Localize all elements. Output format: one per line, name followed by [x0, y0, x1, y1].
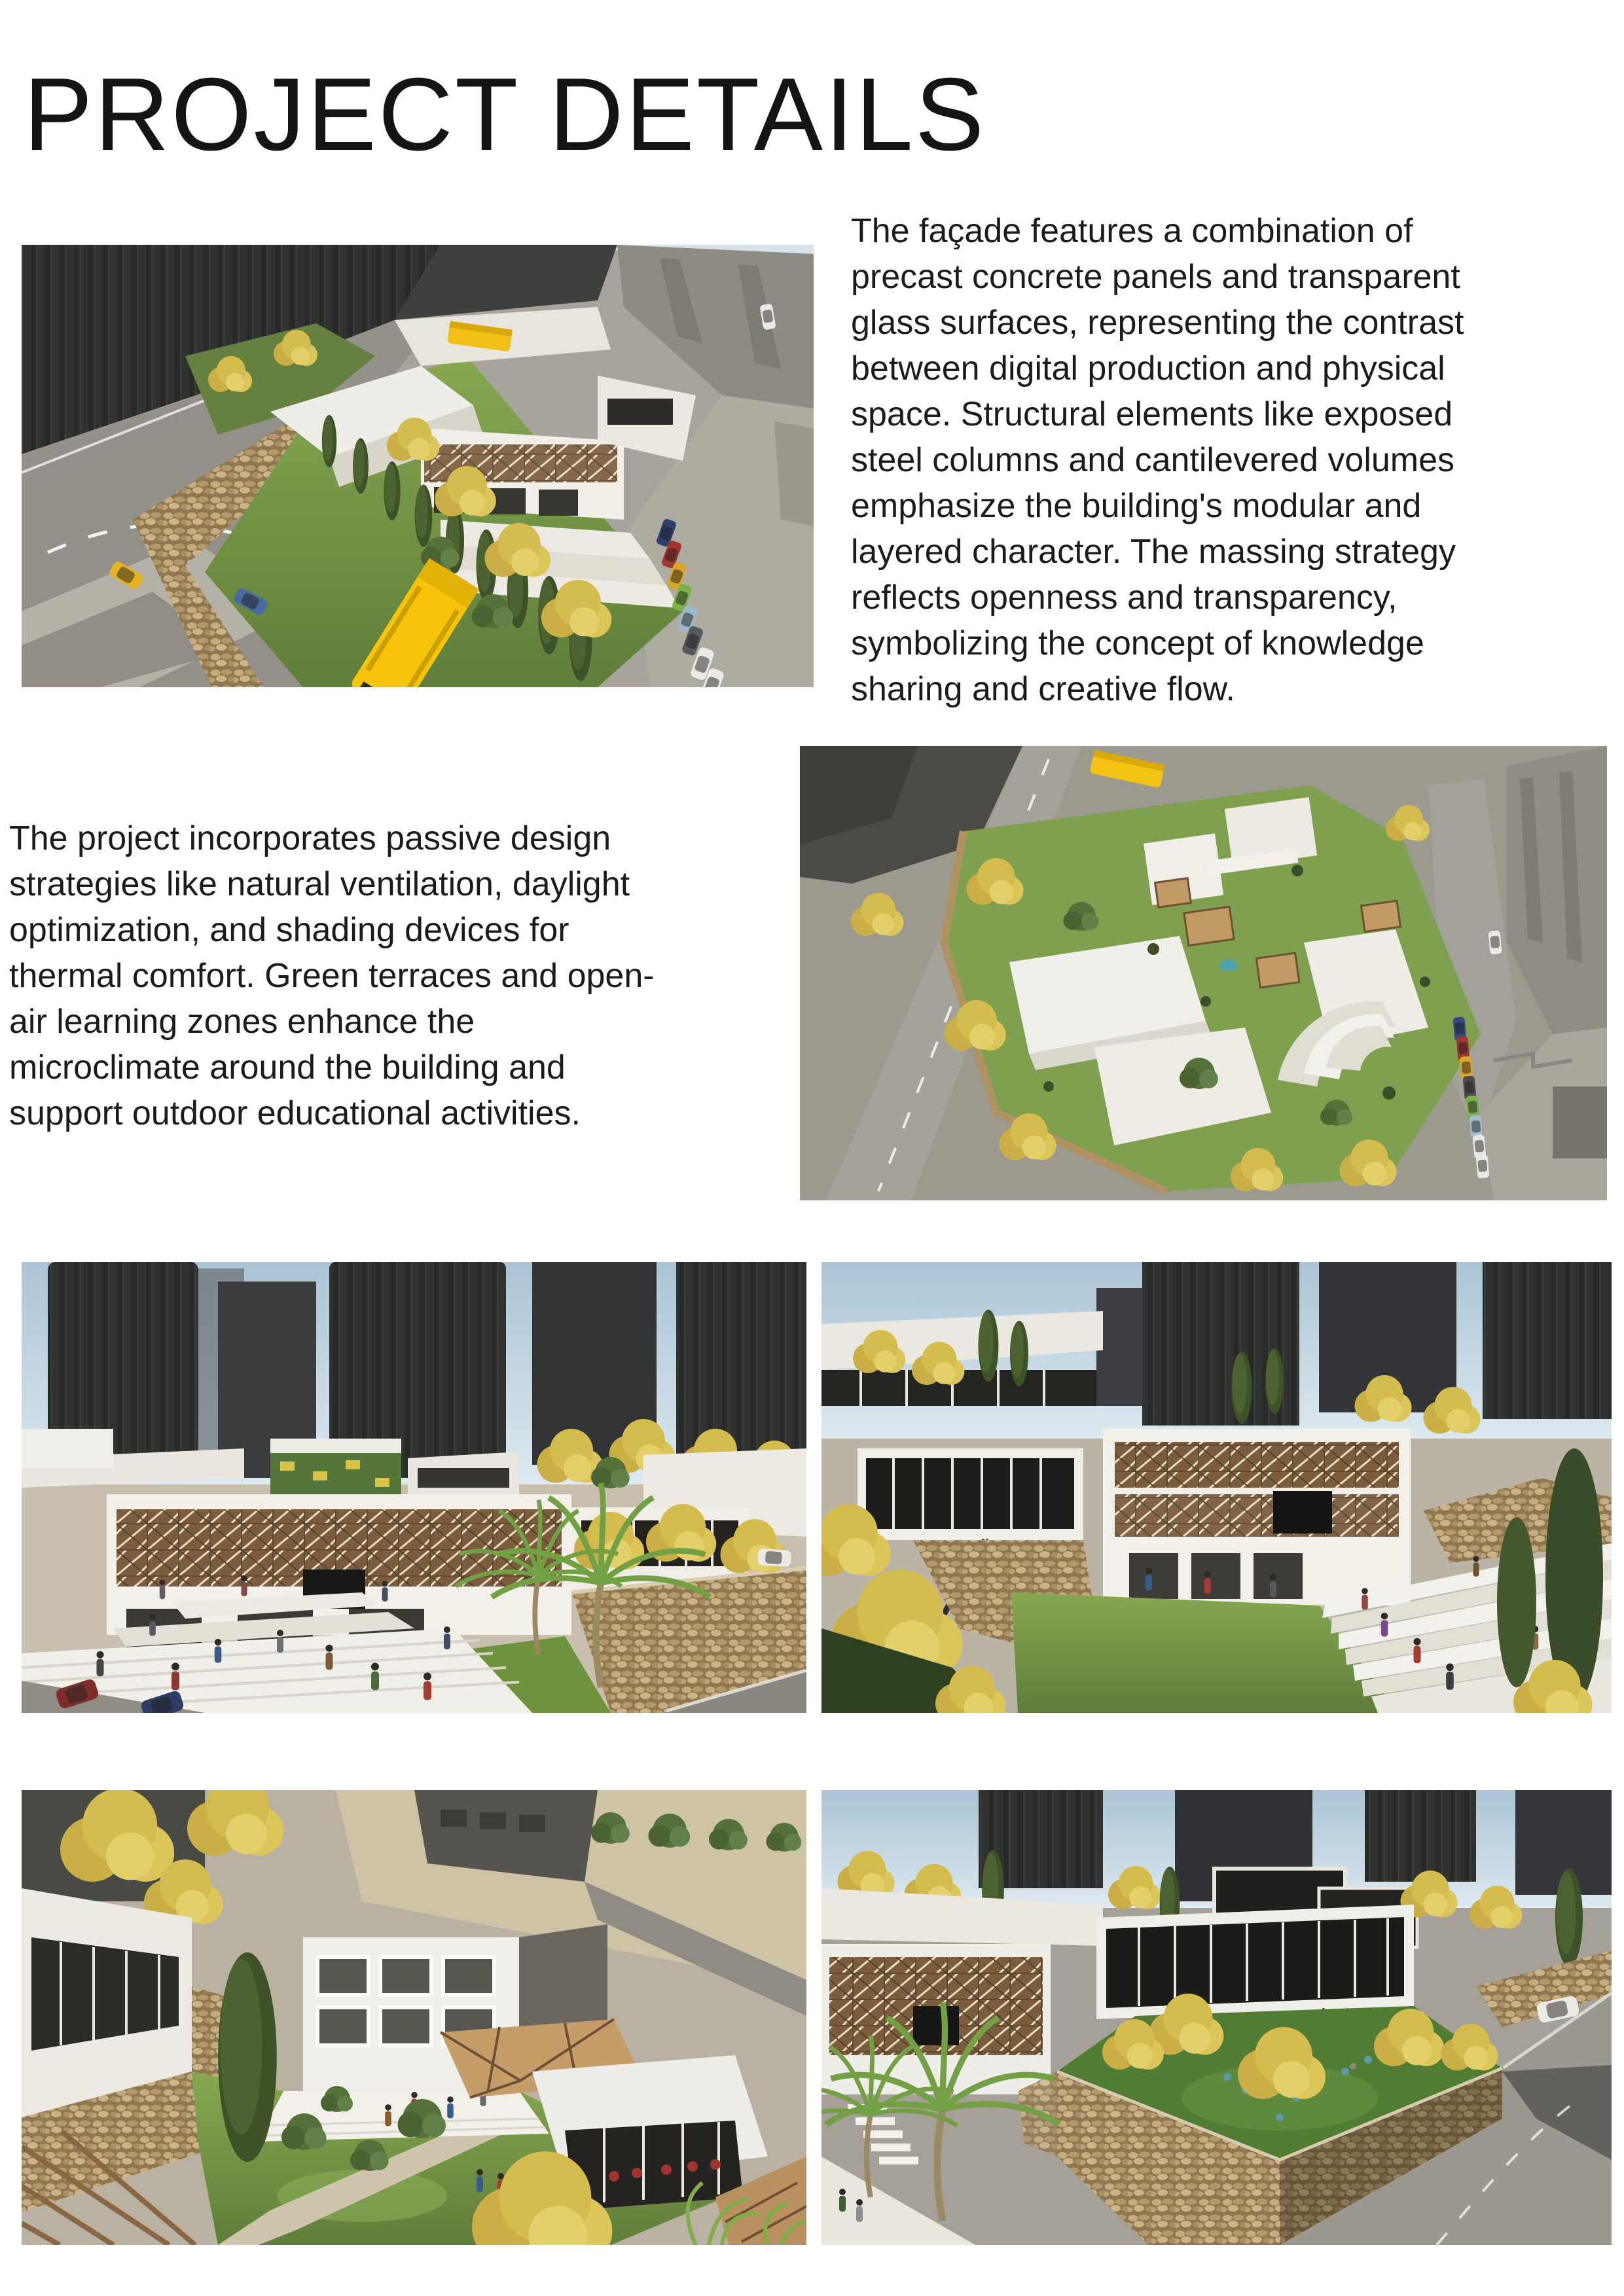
aerial-street-svg: [22, 245, 814, 687]
render-terrace-garden: [821, 1790, 1612, 2245]
portfolio-page: PROJECT DETAILS The façade features a co…: [0, 0, 1624, 2296]
render-plaza-steps: [22, 1262, 806, 1713]
terrace-garden-svg: [821, 1790, 1612, 2245]
render-aerial-street-view: [22, 245, 814, 687]
plaza-steps-svg: [22, 1262, 806, 1713]
courtyard-svg: [22, 1790, 806, 2245]
aerial-top-svg: [800, 746, 1607, 1200]
render-amphitheater: [821, 1262, 1612, 1713]
passive-design-paragraph: The project incorporates passive design …: [9, 816, 811, 1136]
render-courtyard: [22, 1790, 806, 2245]
render-aerial-top-view: [800, 746, 1607, 1200]
facade-paragraph: The façade features a combination of pre…: [851, 208, 1617, 712]
amphitheater-svg: [821, 1262, 1612, 1713]
page-title: PROJECT DETAILS: [24, 63, 986, 166]
